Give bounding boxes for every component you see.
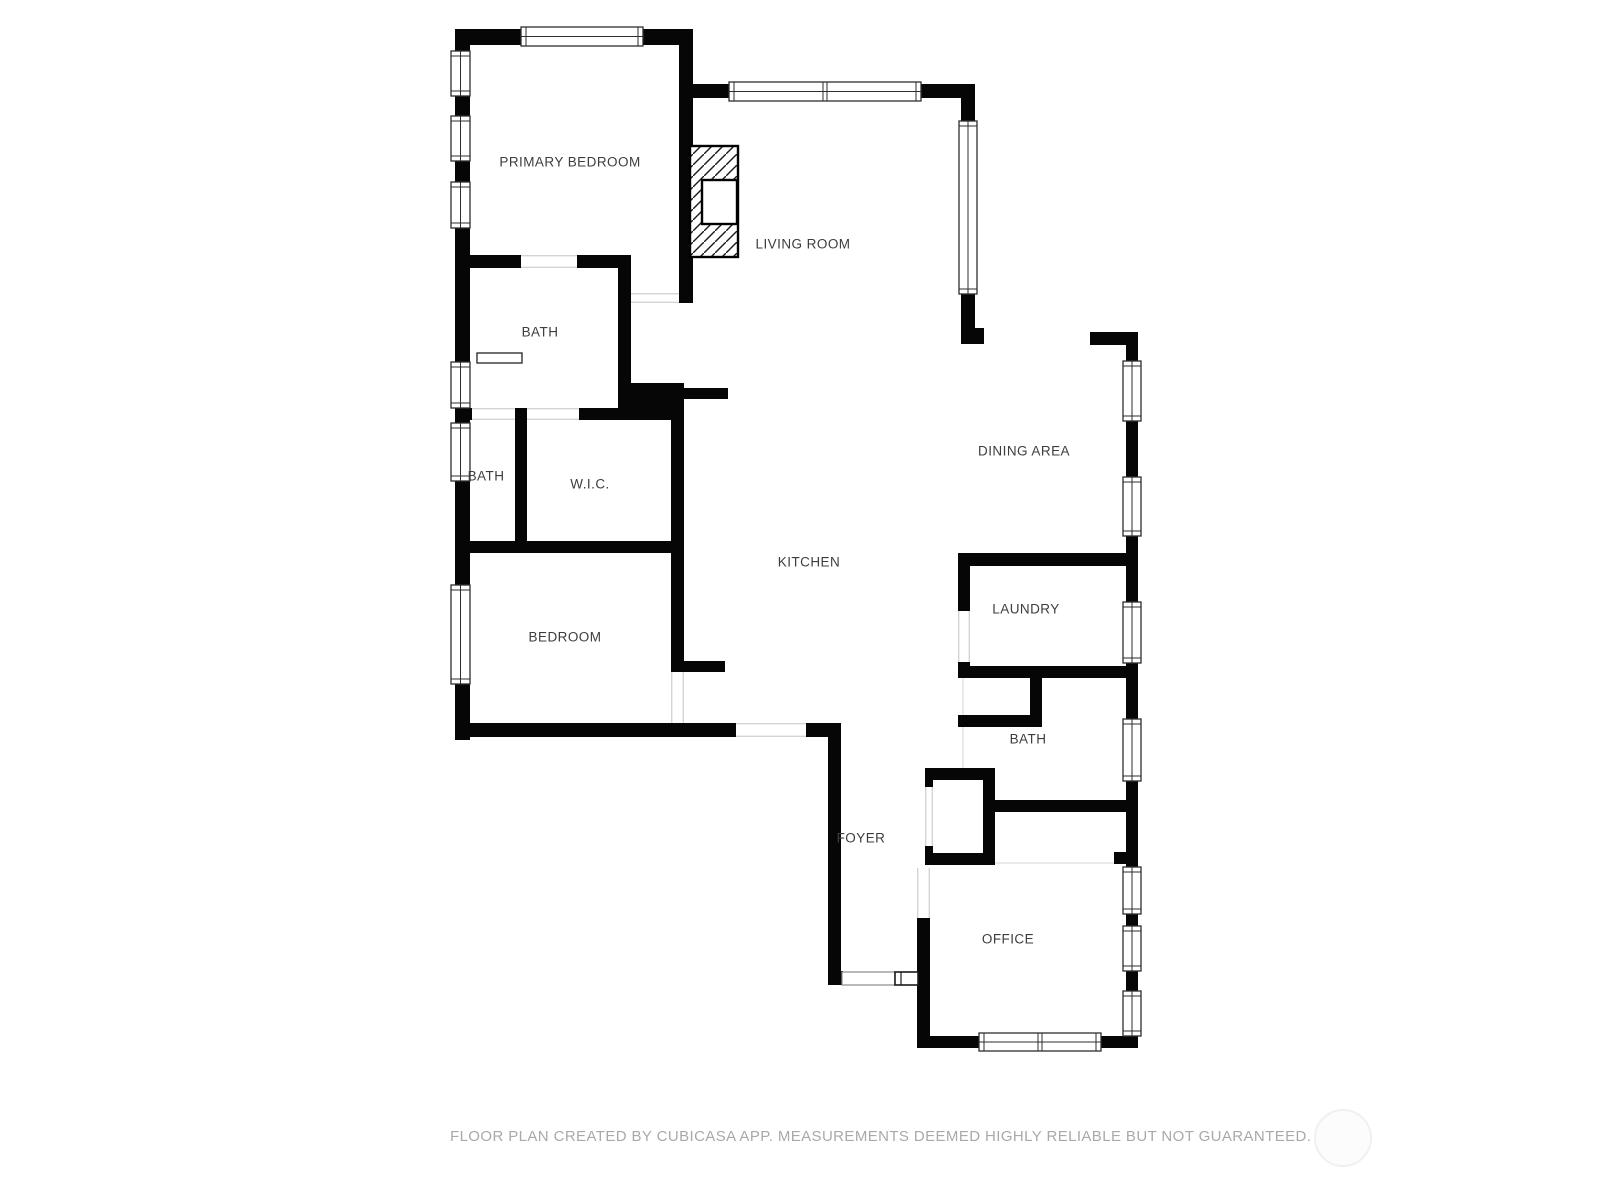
room-label-bath-1: BATH xyxy=(522,325,559,340)
wall xyxy=(828,723,841,985)
wall xyxy=(684,661,725,672)
wall xyxy=(455,541,684,553)
wall xyxy=(958,666,1138,678)
wall xyxy=(1114,852,1126,864)
room-label-bath-2: BATH xyxy=(468,469,505,484)
watermark-circle xyxy=(1314,1109,1372,1167)
wall xyxy=(455,723,736,737)
room-label-dining-area: DINING AREA xyxy=(978,444,1070,459)
room-label-office: OFFICE xyxy=(982,932,1034,947)
door-opening xyxy=(958,611,970,662)
wall xyxy=(828,971,843,985)
entry-door-icon xyxy=(895,972,918,985)
room-label-bath-3: BATH xyxy=(1010,732,1047,747)
bath-shelf-icon xyxy=(477,353,522,363)
door-opening xyxy=(521,255,577,268)
room-label-laundry: LAUNDRY xyxy=(992,602,1059,617)
wall xyxy=(925,853,995,865)
room-label-foyer: FOYER xyxy=(837,831,886,846)
door-opening xyxy=(671,672,684,723)
wall xyxy=(925,768,933,787)
wall xyxy=(993,800,1138,812)
entry-sidelight-icon xyxy=(842,972,895,985)
fireplace-firebox-icon xyxy=(702,180,737,224)
room-label-bedroom: BEDROOM xyxy=(529,630,602,645)
wall xyxy=(958,553,970,611)
wall xyxy=(515,414,527,547)
floor-plan-diagram: PRIMARY BEDROOMLIVING ROOMBATHBATHW.I.C.… xyxy=(0,0,1600,1200)
room-label-wic: W.I.C. xyxy=(570,477,609,492)
wall xyxy=(961,328,984,344)
wall xyxy=(684,388,728,399)
wall xyxy=(671,414,684,672)
door-opening xyxy=(527,408,579,420)
room-label-living-room: LIVING ROOM xyxy=(756,237,851,252)
wall xyxy=(983,768,995,865)
door-opening xyxy=(736,723,806,737)
wall xyxy=(917,918,930,1048)
room-label-primary-bedroom: PRIMARY BEDROOM xyxy=(499,155,640,170)
door-opening xyxy=(917,868,930,918)
wall xyxy=(958,715,1042,727)
wall xyxy=(925,846,933,865)
footer-disclaimer: FLOOR PLAN CREATED BY CUBICASA APP. MEAS… xyxy=(450,1128,1115,1145)
room-label-kitchen: KITCHEN xyxy=(778,555,840,570)
floor-plan-page: PRIMARY BEDROOMLIVING ROOMBATHBATHW.I.C.… xyxy=(0,0,1600,1200)
wall xyxy=(1090,332,1138,345)
wall xyxy=(958,553,1138,566)
door-opening xyxy=(631,293,679,303)
door-opening xyxy=(472,408,515,420)
